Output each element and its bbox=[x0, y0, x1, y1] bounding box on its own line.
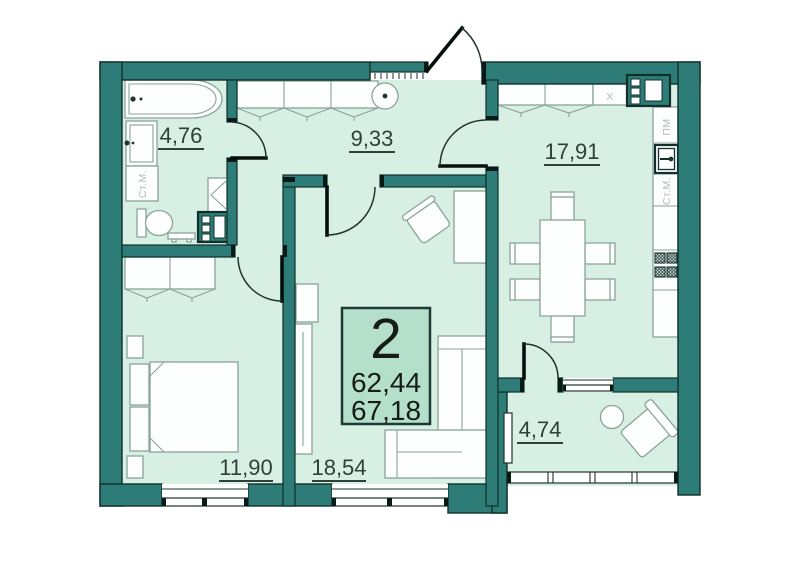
washer-label-kitchen: Ст.М. bbox=[661, 177, 673, 205]
stool-center-dot bbox=[383, 94, 388, 99]
chair-back bbox=[551, 192, 574, 197]
wall-bathroom-bedroom bbox=[122, 245, 235, 257]
dining-table-icon bbox=[540, 220, 585, 316]
bathtub-drain-icon bbox=[140, 98, 143, 101]
chair-icon bbox=[551, 194, 574, 221]
door-jamb-cap bbox=[482, 62, 486, 84]
room-label-bathroom: 4,76 bbox=[160, 123, 203, 148]
balcony-side-window bbox=[504, 413, 512, 463]
bed-icon bbox=[150, 362, 238, 452]
kitchen-faucet-dot bbox=[669, 157, 674, 162]
bedroom-window bbox=[162, 484, 248, 506]
desk-icon bbox=[454, 191, 488, 263]
stove-burner-icon bbox=[655, 253, 665, 263]
floor-plan-page: 4,76 9,33 17,91 11,90 18,54 4,74 Ст.М. П… bbox=[0, 0, 800, 565]
shelf-icon bbox=[296, 284, 318, 322]
wall-bottom bbox=[100, 484, 162, 506]
wall-kitchen-balcony bbox=[613, 378, 678, 392]
coffee-table-icon bbox=[601, 406, 624, 429]
toilet-tank-icon bbox=[137, 209, 146, 237]
room-label-kitchen: 17,91 bbox=[544, 139, 599, 164]
kitchen-counter-icon bbox=[653, 107, 678, 337]
stove-oven-unit-icon bbox=[627, 75, 670, 106]
chair-icon bbox=[513, 279, 540, 300]
fridge-label: X bbox=[606, 91, 614, 103]
door-jamb-cap bbox=[380, 175, 384, 187]
room-label-balcony: 4,74 bbox=[519, 417, 562, 442]
dishwasher-label: ПМ bbox=[661, 118, 673, 135]
wall-bedroom-living bbox=[283, 177, 295, 506]
toilet-bowl-icon bbox=[146, 211, 173, 236]
wall-bathroom-right-lower bbox=[227, 158, 237, 245]
wall-hatch-ticks bbox=[375, 73, 423, 79]
stove-oven-door bbox=[645, 80, 662, 101]
apartment-badge: 2 62,44 67,18 bbox=[342, 307, 430, 426]
floor-plan-drawing: 4,76 9,33 17,91 11,90 18,54 4,74 Ст.М. П… bbox=[0, 0, 800, 565]
wall-kitchen-living bbox=[486, 167, 498, 506]
pillow-icon bbox=[130, 364, 149, 405]
chair-back bbox=[610, 243, 615, 264]
sink-faucet-dot bbox=[132, 142, 135, 145]
wall-top-thin bbox=[370, 62, 428, 72]
stove-knob bbox=[631, 97, 640, 104]
wall-living-top-right bbox=[380, 175, 486, 187]
wall-right bbox=[678, 62, 700, 495]
wall-left bbox=[100, 62, 122, 506]
stove-burner-icon bbox=[655, 267, 665, 277]
chair-icon bbox=[585, 279, 612, 300]
wall-kitchen-left-upper bbox=[486, 80, 498, 120]
bathtub-faucet-icon bbox=[130, 96, 135, 101]
room-label-living: 18,54 bbox=[311, 455, 366, 480]
chair-back bbox=[510, 279, 515, 300]
room-label-hallway: 9,33 bbox=[351, 126, 394, 151]
chair-back bbox=[610, 279, 615, 300]
wall-bathroom-right-upper bbox=[227, 80, 237, 122]
nightstand-icon bbox=[127, 336, 143, 358]
boiler-door bbox=[214, 216, 225, 238]
chair-back bbox=[551, 337, 574, 342]
entrance-door bbox=[427, 28, 482, 71]
wall-top-left bbox=[100, 62, 370, 80]
apartment-living-area: 62,44 bbox=[351, 367, 421, 398]
bath-mat-foot bbox=[172, 239, 176, 242]
wall-end-cap bbox=[283, 177, 295, 182]
washer-label-bathroom: Ст.М. bbox=[137, 170, 149, 198]
chair-icon bbox=[513, 243, 540, 264]
room-label-bedroom: 11,90 bbox=[219, 455, 272, 480]
sofa-horizontal-section bbox=[385, 430, 488, 478]
nightstand-icon bbox=[127, 456, 143, 478]
door-jamb-cap bbox=[558, 378, 562, 392]
boiler-switch bbox=[202, 225, 210, 232]
hallway-wardrobe-icon bbox=[237, 81, 378, 108]
boiler-switch bbox=[202, 234, 210, 241]
kitchen-balcony-window bbox=[563, 378, 613, 392]
chair-icon bbox=[585, 243, 612, 264]
door-jamb-cap bbox=[486, 116, 498, 120]
stove-knob bbox=[631, 79, 640, 86]
pillow-icon bbox=[130, 407, 149, 451]
stove-knob bbox=[631, 88, 640, 95]
boiler-switch bbox=[202, 216, 210, 223]
door-jamb-cap bbox=[231, 245, 235, 257]
bath-mat-icon bbox=[168, 233, 195, 239]
living-window bbox=[332, 484, 448, 506]
chair-back bbox=[510, 243, 515, 264]
balcony-glazing bbox=[507, 472, 678, 483]
door-jamb-cap bbox=[520, 378, 524, 392]
stove-burner-icon bbox=[667, 253, 677, 263]
stove-burner-icon bbox=[667, 267, 677, 277]
bathroom-sink-icon bbox=[126, 121, 157, 166]
apartment-total-area: 67,18 bbox=[351, 395, 421, 426]
apartment-number: 2 bbox=[370, 307, 402, 371]
bath-mat-foot bbox=[187, 239, 191, 242]
sink-faucet-icon bbox=[125, 141, 130, 146]
door-jamb-cap bbox=[227, 118, 237, 122]
